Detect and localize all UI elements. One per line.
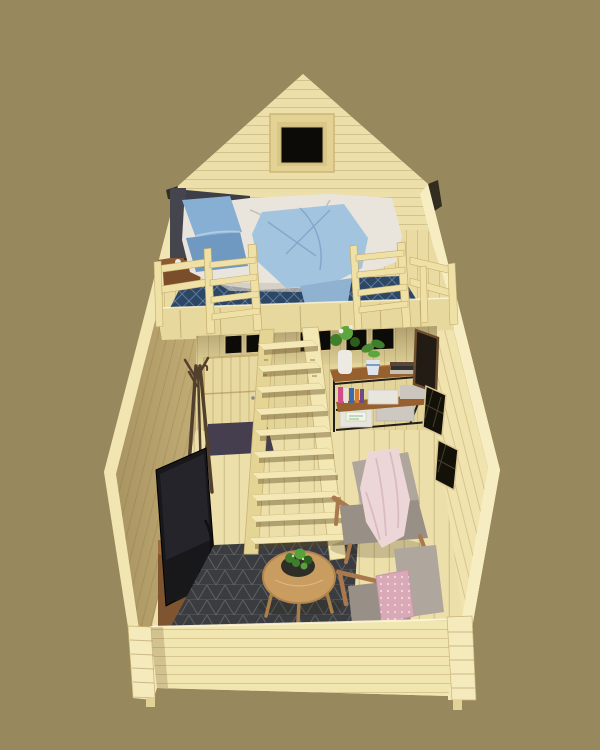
gable-window-pane: [281, 127, 323, 163]
flower-vase: [338, 350, 352, 374]
wall-picture-frame: [414, 330, 438, 392]
door-handle: [251, 396, 255, 400]
gable-window: [270, 114, 334, 172]
tiny-house-render: [0, 0, 600, 750]
back-door: [204, 355, 260, 430]
transom-pane: [225, 335, 242, 354]
right-window-pane: [423, 386, 446, 436]
render-canvas: [0, 0, 600, 750]
pink-polka-pillow: [376, 570, 414, 624]
